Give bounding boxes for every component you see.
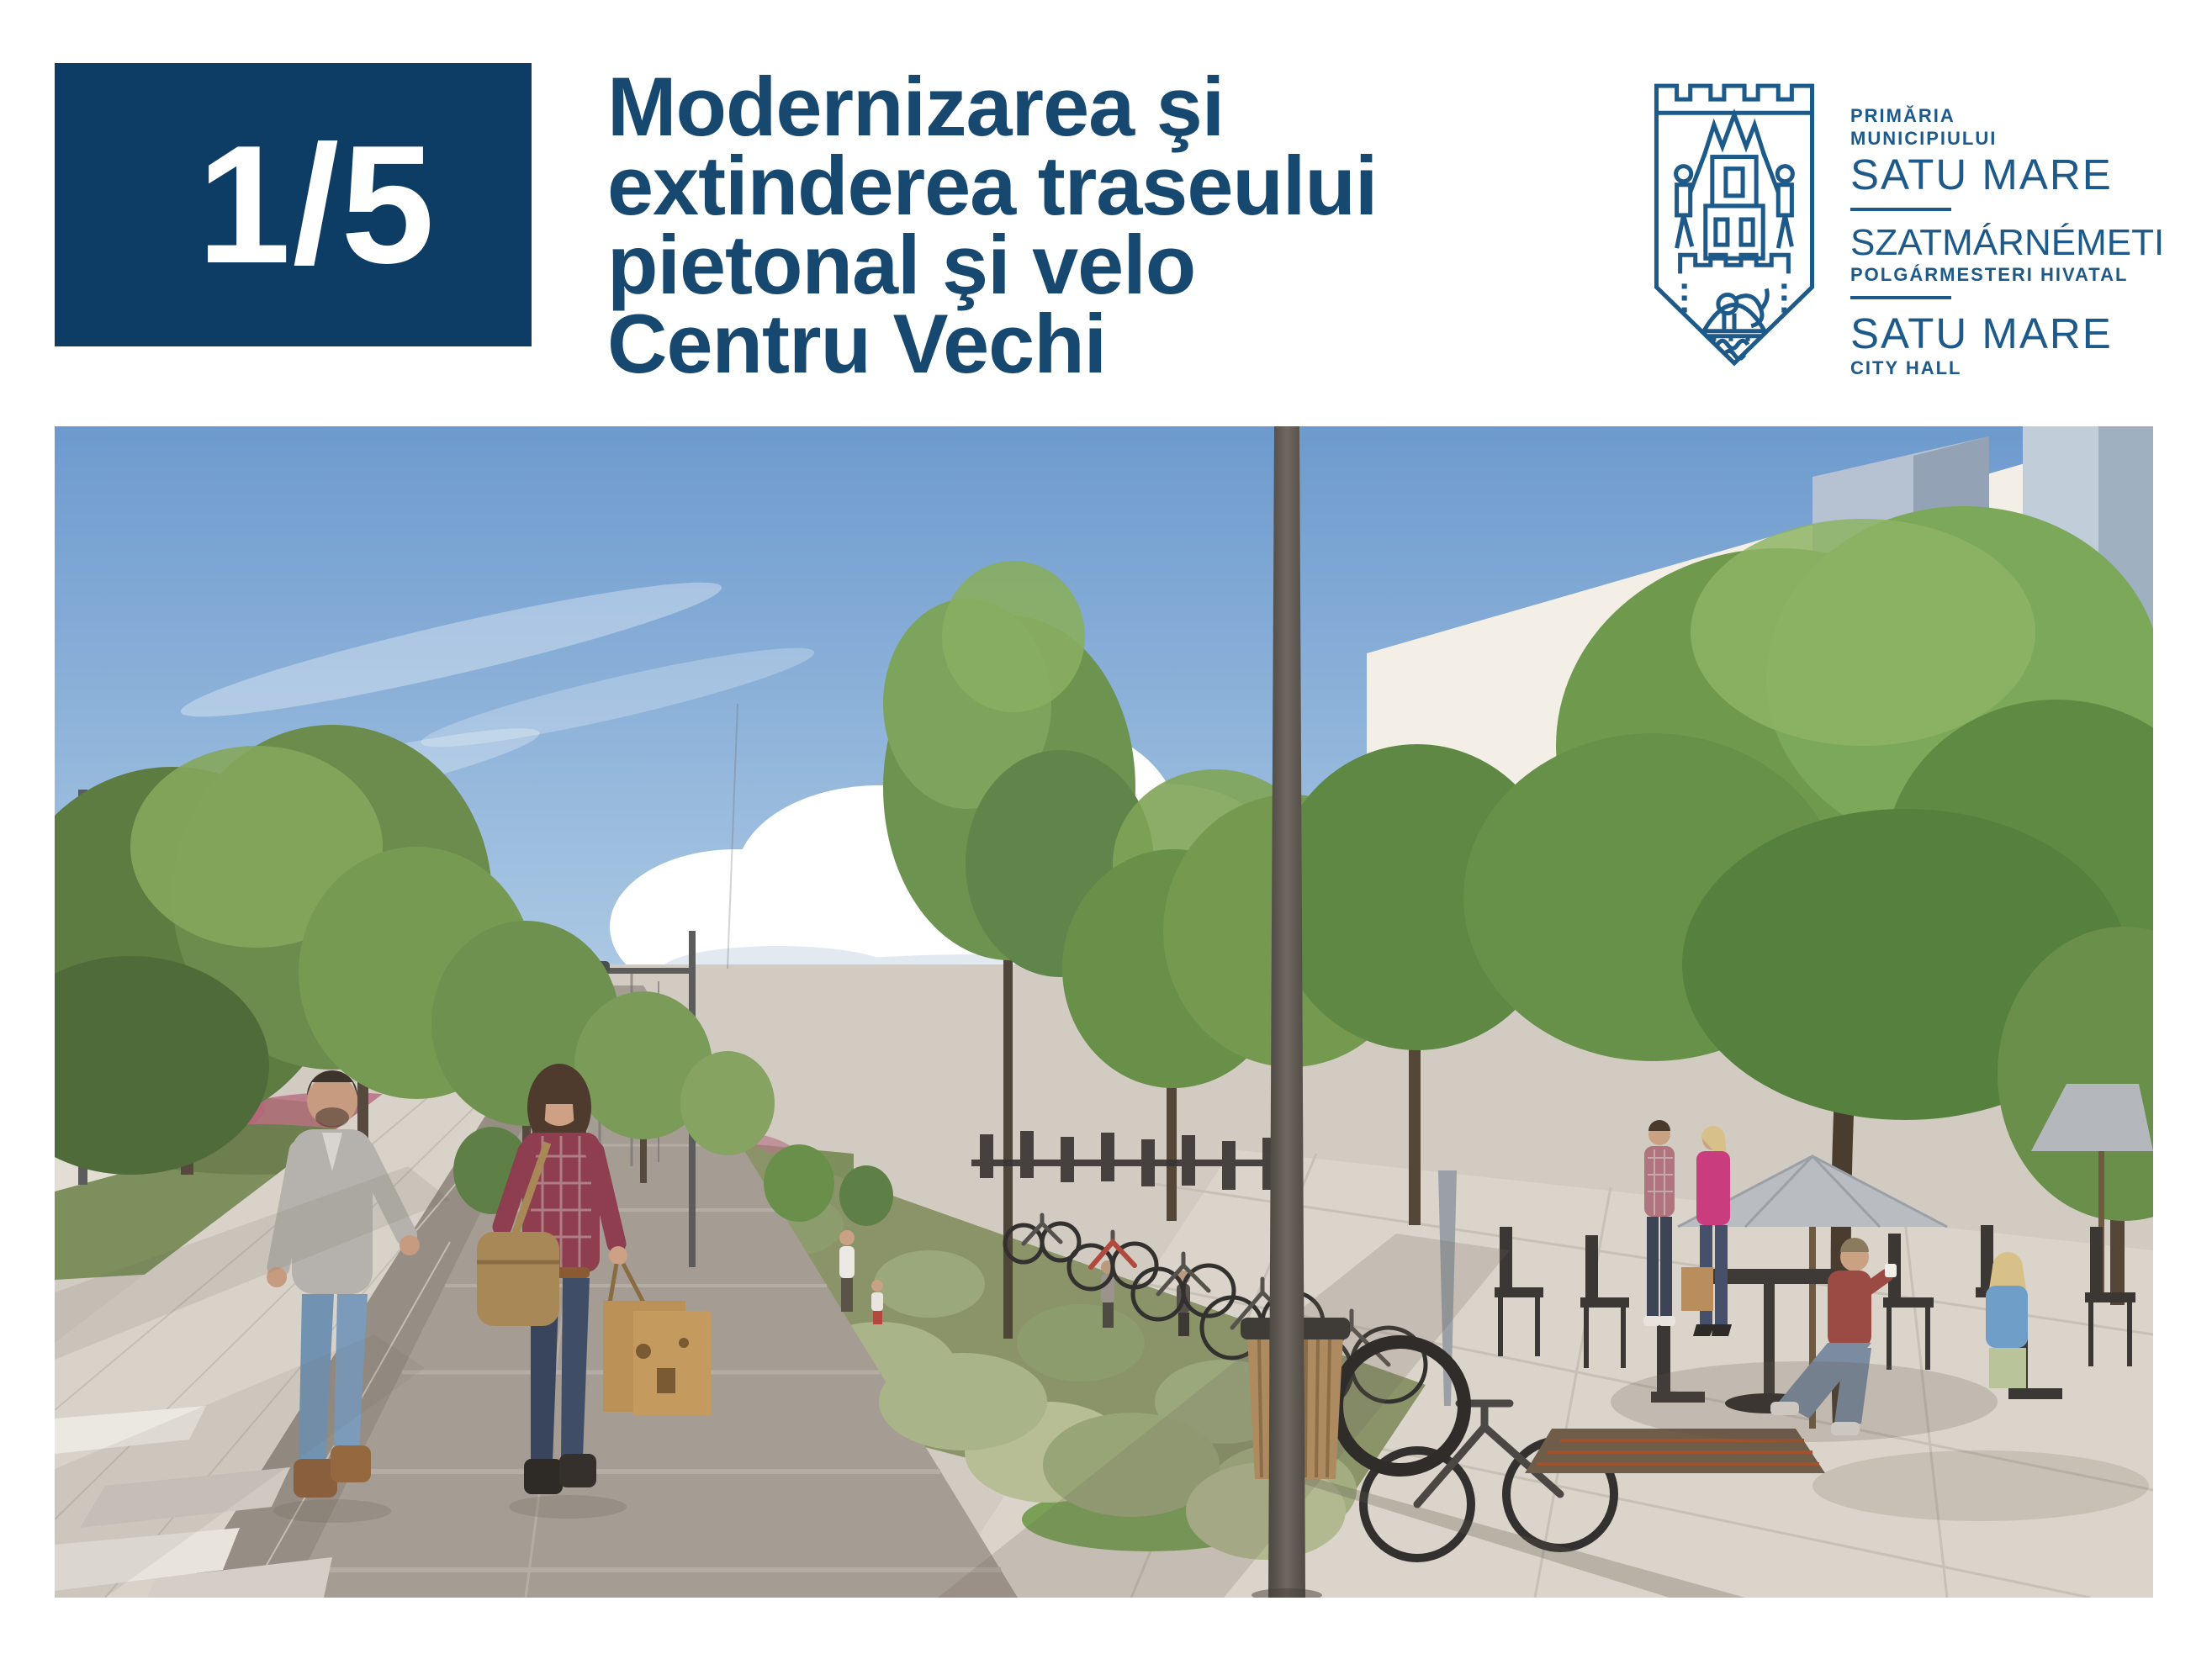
tower-spires <box>1704 114 1765 156</box>
satu-mare-logo: PRIMĂRIA MUNICIPIULUI SATU MARE SZATMÁRN… <box>1648 74 2162 377</box>
logo-name-en: SATU MARE <box>1850 311 2162 357</box>
title-line-4: Centru Vechi <box>607 304 1377 383</box>
logo-org-line2: MUNICIPIULUI <box>1850 127 2162 150</box>
logo-text-block: PRIMĂRIA MUNICIPIULUI SATU MARE SZATMÁRN… <box>1850 104 2162 379</box>
title-line-2: extinderea traseului <box>607 146 1377 225</box>
title-line-3: pietonal şi velo <box>607 225 1377 304</box>
seated-woman <box>1986 1252 2028 1388</box>
logo-name-hu: SZATMÁRNÉMETI <box>1850 223 2162 263</box>
tall-pole <box>1268 426 1305 1598</box>
logo-sub-en: CITY HALL <box>1850 357 2162 379</box>
wave-line-1 <box>1717 341 1748 348</box>
coat-of-arms-shield-icon <box>1648 74 1820 372</box>
page-indicator: 1/5 <box>197 108 436 302</box>
logo-sub-hu: POLGÁRMESTERI HIVATAL <box>1850 263 2162 286</box>
presentation-slide: 1/5 Modernizarea şi extinderea traseului… <box>0 0 2212 1659</box>
slide-title: Modernizarea şi extinderea traseului pie… <box>607 67 1377 383</box>
page-indicator-box: 1/5 <box>55 63 532 346</box>
logo-divider-1 <box>1850 208 1951 211</box>
right-knight-body <box>1778 185 1791 215</box>
left-knight-head <box>1676 166 1691 182</box>
paper-bag-2 <box>633 1311 711 1415</box>
render-image <box>55 426 2153 1598</box>
base-ledge <box>1706 336 1763 341</box>
right-knight-head <box>1777 166 1792 182</box>
logo-divider-2 <box>1850 296 1951 299</box>
title-line-1: Modernizarea şi <box>607 67 1377 146</box>
logo-name-ro: SATU MARE <box>1850 152 2162 198</box>
promenade-scene <box>55 426 2153 1598</box>
tower-body <box>1712 157 1756 206</box>
logo-org-line1: PRIMĂRIA <box>1850 104 2162 127</box>
tower-window <box>1726 169 1743 196</box>
left-knight-body <box>1677 185 1691 215</box>
shoulder-bag <box>477 1232 559 1326</box>
